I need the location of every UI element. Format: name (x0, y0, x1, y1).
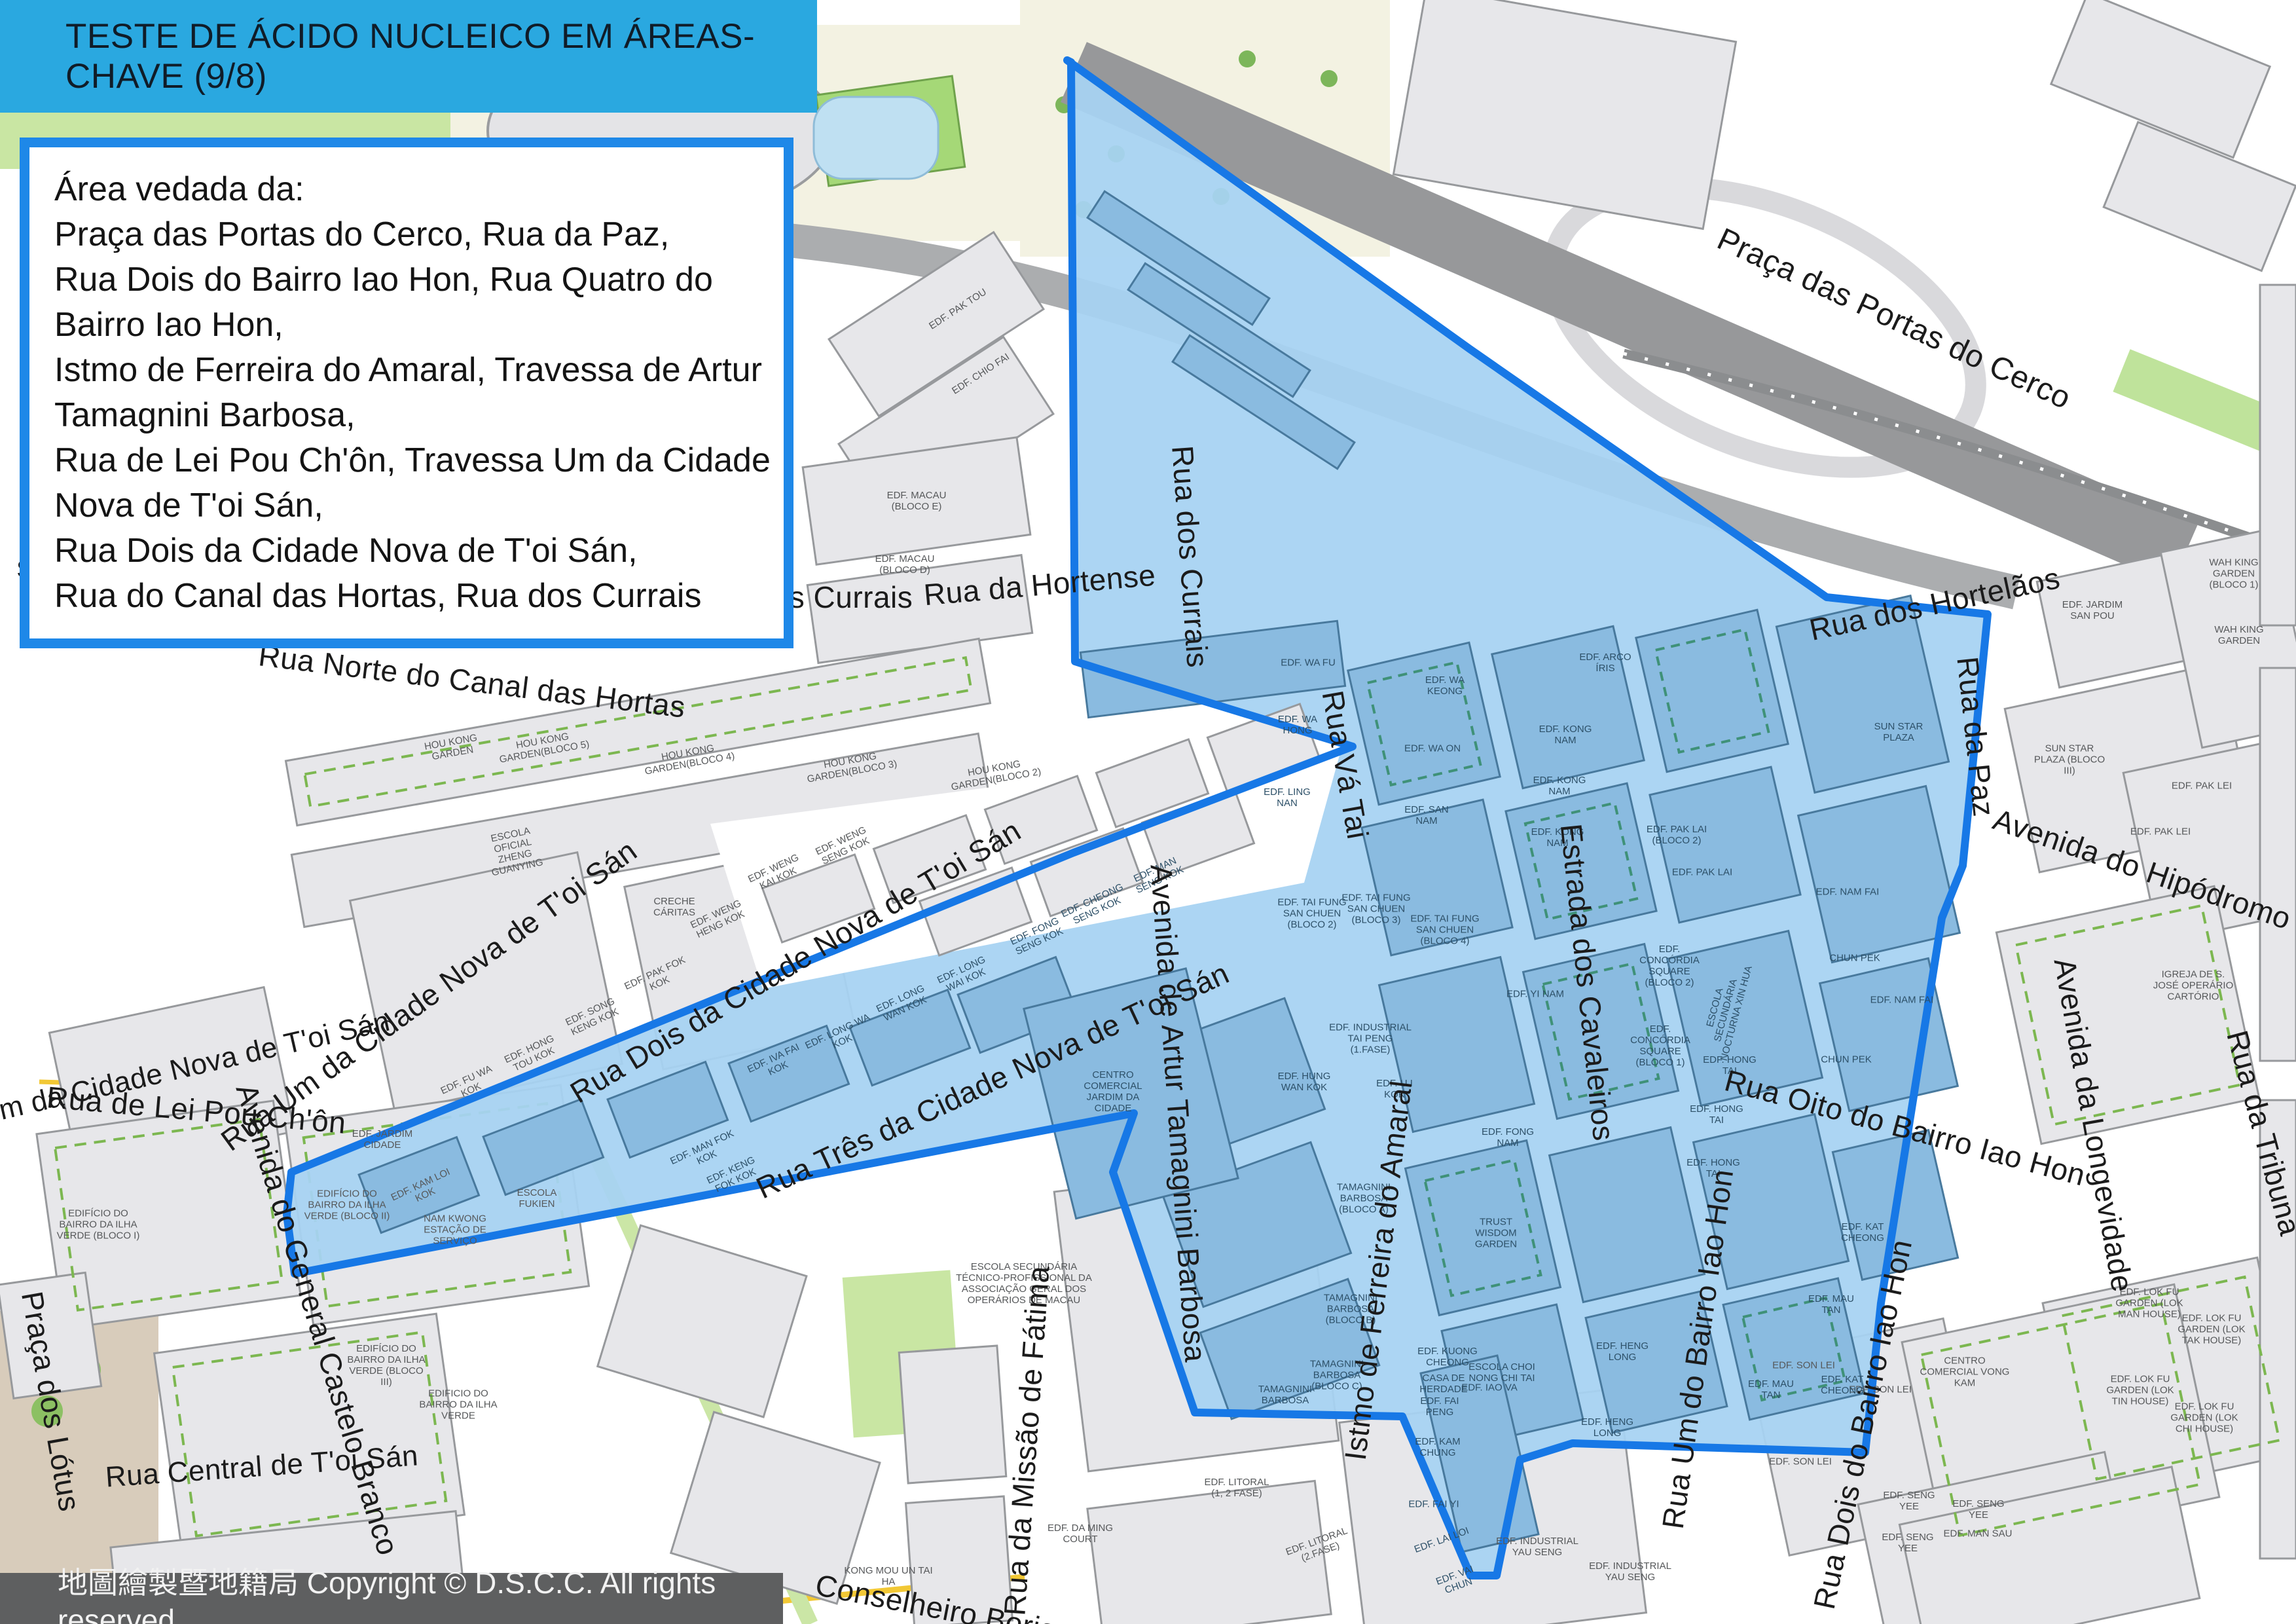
building-label: EDIFÍCIO DO BAIRRO DA ILHA VERDE (BLOCO … (303, 1188, 392, 1221)
building-label: EDF. DA MING COURT (1038, 1522, 1123, 1545)
building-label: EDF. SON LEI (1771, 1359, 1836, 1371)
restricted-area-info-box: Área vedada da: Praça das Portas do Cerc… (20, 138, 793, 648)
building-label: EDIFÍCIO DO BAIRRO DA ILHA VERDE (BLOCO … (54, 1208, 143, 1241)
info-line: Rua do Canal das Hortas, Rua dos Currais (54, 574, 759, 619)
building-label: SUN STAR PLAZA (BLOCO III) (2033, 743, 2105, 776)
building-label: CHUN PEK (1813, 1054, 1879, 1065)
building-label: EDF. MAU TAN (1738, 1378, 1804, 1401)
street-label-s-currais: s Currais (790, 580, 913, 615)
building-label: CRECHE CÁRITAS (638, 896, 710, 918)
building-label: EDIFÍCIO DO BAIRRO DA ILHA VERDE (BLOCO … (342, 1343, 431, 1388)
page-title: TESTE DE ÁCIDO NUCLEICO EM ÁREAS-CHAVE (… (0, 16, 817, 96)
info-line: Tamagnini Barbosa, (54, 393, 759, 438)
building-label: EDF. WA FU (1275, 657, 1341, 668)
building-label: EDF. INDUSTRIAL TAI PENG (1.FASE) (1328, 1022, 1413, 1055)
building-label: EDF. SON LEI (1768, 1456, 1833, 1467)
building-label: EDF. IAO VA (1460, 1382, 1519, 1393)
building-label: EDF. INDUSTRIAL YAU SENG (1584, 1560, 1676, 1583)
building-label: WAH KING GARDEN (BLOCO 1) (2195, 557, 2273, 590)
building-label: EDF. KONG NAM (1533, 724, 1598, 746)
building-label: EDF. PAK LEI (2124, 826, 2196, 837)
building-label: CHUN PEK (1822, 952, 1887, 963)
building-label: EDF. LOK FU GARDEN (LOK CHI HOUSE) (2162, 1401, 2247, 1434)
building-label: EDIFICIO DO BAIRRO DA ILHA VERDE (416, 1388, 501, 1421)
building-label: EDF. KUONG CHEONG (1412, 1346, 1484, 1368)
building-label: EDF. WA ON (1400, 743, 1465, 754)
building-label: EDF. INDUSTRIAL YAU SENG (1491, 1536, 1583, 1558)
building-label: SUN STAR PLAZA (1863, 721, 1935, 743)
building-label: CENTRO COMERCIAL VONG KAM (1916, 1355, 2014, 1388)
building-label: EDF. CONCÓRDIA SQUARE (BLOCO 1) (1621, 1024, 1700, 1068)
building-label: EDF. HUNG WAN KOK (1271, 1071, 1337, 1093)
info-line: Istmo de Ferreira do Amaral, Travessa de… (54, 348, 759, 393)
building-label: EDF. LITORAL (1, 2 FASE) (1201, 1477, 1273, 1499)
building-label: EDF. MACAU (BLOCO E) (874, 490, 959, 512)
building-label: EDF. HENG LONG (1590, 1340, 1655, 1363)
building-label: EDF. ARCO ÍRIS (1573, 652, 1638, 674)
building-label: EDF. PAK LAI (BLOCO 2) (1641, 824, 1713, 846)
copyright-text: 地圖繪製暨地籍局 Copyright © D.S.C.C. All rights… (0, 1559, 783, 1624)
building-label: EDF. FONG NAM (1475, 1126, 1540, 1149)
info-line: Rua de Lei Pou Ch'ôn, Travessa Um da Cid… (54, 438, 759, 483)
building-label: EDF. JARDIM CIDADE (350, 1128, 415, 1151)
building-label: EDF. MAU TAN (1798, 1293, 1864, 1316)
info-line: Bairro Iao Hon, (54, 303, 759, 348)
building-label: EDF. LOK FU GARDEN (LOK TAK HOUSE) (2169, 1312, 2254, 1346)
info-line: Nova de T'oi Sán, (54, 483, 759, 528)
info-line: Praça das Portas do Cerco, Rua da Paz, (54, 212, 759, 257)
building-label: EDF. KONG NAM (1527, 775, 1592, 797)
map-page: Praça das Portas do Cerco Rua dos Hortel… (0, 0, 2296, 1624)
building-label: EDF. MACAU (BLOCO D) (862, 553, 947, 576)
building-label: WAH KING GARDEN (2203, 624, 2275, 646)
building-label: EDF. TAI FUNG SAN CHUEN (BLOCO 4) (1406, 913, 1484, 946)
building-label: EDF. HONG TAI (1684, 1103, 1749, 1126)
building-label: EDF. MAN SAU (1939, 1528, 2017, 1539)
info-line: Área vedada da: (54, 167, 759, 212)
building-label: EDF. HENG LONG (1575, 1416, 1640, 1439)
building-label: CENTRO COMERCIAL JARDIM DA CIDADE (1070, 1069, 1156, 1114)
building-label: IGREJA DE S. JOSÉ OPERÁRIO CARTÓRIO (2147, 969, 2239, 1002)
building-label: EDF. TAI FUNG SAN CHUEN (BLOCO 3) (1337, 892, 1415, 925)
building-label: EDF. NAM FAI (1815, 886, 1880, 897)
building-label: EDF. WA KEONG (1412, 674, 1478, 697)
building-label: EDF. NAM FAI (1869, 994, 1935, 1005)
building-label: EDF. FAI YI (1404, 1498, 1463, 1509)
building-label: EDF. PAK LAI (1669, 866, 1735, 877)
info-line: Rua Dois da Cidade Nova de T'oi Sán, (54, 528, 759, 574)
building-label: EDF. SENG YEE (1942, 1498, 2014, 1521)
building-label: EDF. JARDIM SAN POU (2053, 599, 2132, 621)
building-label: EDF. PAK LEI (2166, 780, 2238, 791)
building-label: EDF. FAI PENG (1407, 1395, 1472, 1418)
title-bar: TESTE DE ÁCIDO NUCLEICO EM ÁREAS-CHAVE (… (0, 0, 817, 113)
building-label: EDF. CONCÓRDIA SQUARE (BLOCO 2) (1630, 944, 1709, 988)
building-label: TRUST WISDOM GARDEN (1460, 1216, 1532, 1249)
building-label: EDF. SENG YEE (1873, 1490, 1945, 1512)
building-label: ESCOLA FUKIEN (501, 1187, 573, 1209)
building-label: EDF. YI NAM (1506, 988, 1565, 999)
building-label: NAM KWONG ESTAÇÃO DE SERVIÇO (412, 1213, 498, 1246)
building-label: EDF. SAN NAM (1394, 804, 1459, 826)
copyright-bar: 地圖繪製暨地籍局 Copyright © D.S.C.C. All rights… (0, 1573, 783, 1624)
info-line: Rua Dois do Bairro Iao Hon, Rua Quatro d… (54, 257, 759, 303)
building-label: EDF. SENG YEE (1872, 1532, 1944, 1554)
building-label: EDF. KAM CHUNG (1405, 1436, 1470, 1458)
building-label: TAMAGNINI BARBOSA (1246, 1384, 1324, 1406)
building-label: EDF. LING NAN (1254, 786, 1320, 809)
